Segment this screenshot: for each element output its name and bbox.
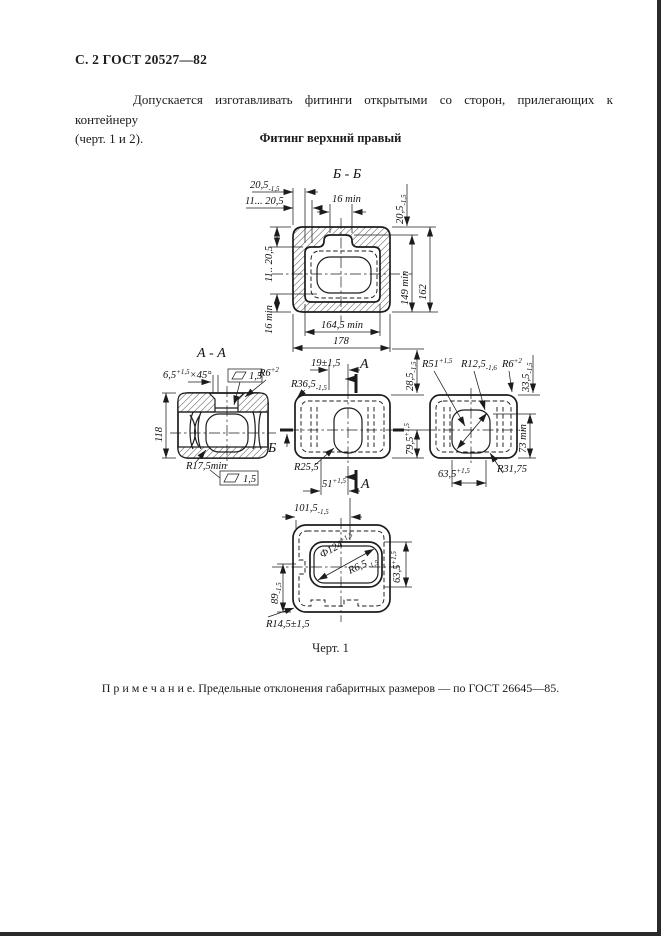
section-mark-b: Б — [267, 430, 293, 456]
finish-value-bottom: 1,5 — [243, 474, 256, 485]
dim-r51: R51+1,5 — [421, 357, 453, 370]
dim-r125: R12,5-1,6 — [460, 359, 497, 372]
dim-chamfer: 6,5+1,5×45° — [163, 368, 212, 381]
dim-r3175: R31,75 — [496, 464, 527, 475]
intro-line-1: Допускается изготавливать фитинги открыт… — [75, 90, 613, 129]
view-title-bb: Б - Б — [332, 167, 361, 182]
dim-89: 89-1,5 — [270, 582, 283, 604]
figure-caption: Черт. 1 — [0, 641, 661, 656]
dim-r255: R25,5 — [293, 462, 319, 473]
dim-335: 33,5-1,5 — [521, 362, 534, 393]
section-label-b: Б — [267, 441, 276, 456]
finish-glyph-icon — [224, 474, 239, 482]
dim-r175min: R17,5min — [185, 461, 227, 472]
dim-r6-side: R6+2 — [501, 357, 522, 370]
note-text: П р и м е ч а н и е. Предельные отклонен… — [0, 681, 661, 696]
dim-r65: R6,5-1,5 — [346, 554, 381, 580]
dim-outer-width: 178 — [333, 336, 350, 347]
dim-r365: R36,5-1,5 — [290, 379, 327, 392]
surface-finish-symbol-bottom: 1,5 — [220, 471, 258, 485]
dim-285: 28,5-1,5 — [405, 361, 418, 391]
section-mark-a-bottom: А — [345, 470, 370, 492]
bb-section-body — [293, 227, 390, 312]
dim-lip-left: 16 min — [264, 305, 275, 334]
side-body-outline — [430, 395, 517, 458]
dim-wall-thickness-top: 20,5-1,5 — [250, 180, 280, 193]
dim-19: 19±1,5 — [311, 358, 340, 369]
scan-edge-right — [657, 0, 661, 936]
dim-635-bottom: 63,5+1,5 — [390, 551, 403, 583]
side-view: R51+1,5 R12,5-1,6 R6+2 33,5-1,5 73 min 6… — [421, 355, 540, 487]
side-hidden-walls — [444, 407, 503, 447]
page-header: С. 2 ГОСТ 20527—82 — [75, 52, 207, 68]
aa-hatch-top-right — [238, 393, 268, 412]
front-body-outline — [295, 395, 390, 458]
dim-r145: R14,5±1,5 — [265, 619, 310, 630]
aa-wall-curves — [190, 412, 261, 449]
front-hidden-walls — [311, 407, 374, 447]
dim-51: 51+1,5 — [322, 477, 346, 490]
figure-title: Фитинг верхний правый — [0, 131, 661, 146]
dim-wall-range-left: 11.. 20,5 — [264, 246, 275, 282]
section-view-bb: Б - Б — [245, 167, 438, 352]
dim-795: 79,5+1,5 — [403, 423, 416, 455]
dim-slot-width: 16 min — [332, 194, 361, 205]
surface-finish-symbol-top: 1,5 — [228, 369, 262, 382]
technical-drawing: Б - Б — [0, 150, 661, 660]
dim-inner-height: 149 min — [400, 271, 411, 305]
dim-wall-thickness-right: 20,5-1,5 — [395, 194, 408, 224]
dim-inner-width: 164,5 min — [321, 320, 363, 331]
dim-outer-height: 162 — [418, 284, 429, 301]
bb-hidden-contour — [311, 251, 377, 298]
bottom-view: 101,5-1,5 Ф124+1,5 R6,5-1,5 63,5+1,5 89-… — [265, 498, 412, 630]
dim-r6: R6+2 — [258, 366, 279, 379]
section-label-a-bottom: А — [360, 477, 370, 492]
side-hidden-contour — [436, 401, 511, 452]
finish-glyph-icon — [232, 372, 246, 379]
dim-635-side: 63,5+1,5 — [438, 467, 470, 480]
front-view: 19±1,5 R36,5-1,5 R6+2 А 28,5-1,5 79,5+1,… — [245, 349, 424, 495]
scan-edge-bottom — [0, 932, 661, 936]
side-hole-diagonal — [457, 413, 487, 449]
view-title-aa: А - А — [196, 346, 226, 361]
dim-1015: 101,5-1,5 — [294, 503, 329, 516]
aa-hatch-top-left — [178, 393, 215, 412]
section-label-a-top: А — [359, 357, 369, 372]
section-mark-a-top: А — [345, 357, 369, 393]
dim-73min: 73 min — [518, 424, 529, 453]
dim-wall-range-top: 11... 20,5 — [245, 196, 284, 207]
bb-aperture — [317, 257, 371, 293]
dim-height-118: 118 — [154, 426, 165, 442]
